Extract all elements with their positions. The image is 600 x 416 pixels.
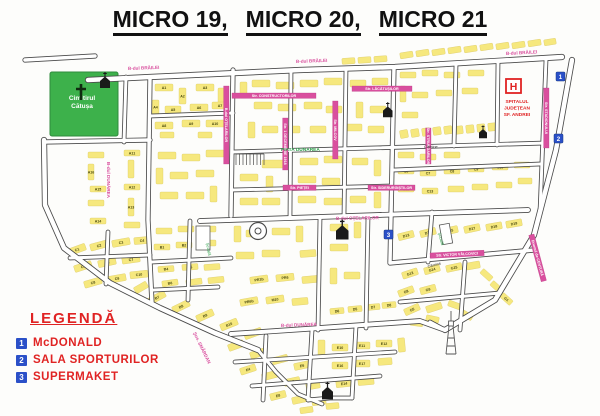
building-code: C13	[427, 189, 434, 193]
building-code: A4	[153, 105, 158, 109]
building-block	[262, 250, 280, 257]
building-block	[278, 104, 296, 111]
building-block	[402, 112, 418, 118]
building-block	[272, 228, 290, 235]
building-block: A2	[179, 88, 186, 104]
building-code: E12	[381, 342, 387, 346]
street-label: Șos. SMÂRDAN	[191, 331, 213, 366]
building-block	[374, 56, 387, 63]
building-block	[240, 198, 258, 205]
building-block	[182, 154, 200, 161]
building-block	[240, 174, 258, 181]
building-block	[252, 80, 270, 87]
building-block	[262, 126, 278, 133]
building-code: A12	[129, 185, 136, 189]
building-block	[444, 126, 453, 135]
building-block: E16	[332, 362, 348, 369]
building-block: A11	[124, 150, 140, 156]
building-block	[480, 43, 494, 51]
building-block: D5	[348, 305, 362, 312]
building-code: A10	[212, 122, 219, 126]
building-block	[544, 38, 557, 46]
building-block	[448, 46, 462, 54]
building-block: A10	[206, 120, 224, 127]
building-block	[298, 196, 316, 203]
building-block: D19	[506, 219, 523, 229]
building-block	[480, 268, 494, 281]
street-name: B-dul DUNĂREA	[281, 321, 318, 328]
church-cross	[326, 382, 330, 388]
marker-1-icon: 1	[16, 338, 27, 349]
road-surface	[454, 65, 456, 146]
building-block	[466, 125, 475, 134]
building-block	[330, 244, 348, 251]
building-block: C10	[130, 270, 149, 279]
building-block: PR6b	[240, 296, 259, 306]
legend-item-supermaket: 3 SUPERMAKET	[16, 371, 186, 383]
building-block	[324, 198, 342, 205]
building-block	[304, 102, 322, 109]
building-block	[544, 38, 557, 46]
building-block	[186, 192, 204, 199]
building-block	[400, 72, 416, 78]
church-cross	[386, 102, 389, 107]
building-block	[344, 272, 360, 279]
poi-marker: 2	[554, 134, 563, 143]
parking-lot	[236, 154, 264, 165]
building-block	[444, 152, 460, 158]
building-block	[472, 184, 488, 190]
building-block	[356, 102, 363, 118]
building-code: B2	[182, 243, 187, 247]
building-block: A13	[128, 198, 135, 216]
building-block	[262, 198, 280, 205]
building-block	[350, 196, 366, 203]
building-block: B4	[158, 265, 174, 272]
building-block	[399, 129, 408, 138]
building-block	[262, 160, 284, 168]
street-name: B-dul DUNĂREA	[106, 162, 112, 199]
road-surface	[44, 140, 150, 142]
building-block: D18	[486, 222, 503, 232]
building-block: C13	[422, 188, 438, 194]
building-block	[234, 226, 241, 242]
building-block: A1	[155, 84, 173, 91]
poi-marker: 1	[556, 72, 565, 81]
building-block	[432, 48, 446, 56]
building-block	[318, 340, 325, 356]
poi-marker-number: 2	[557, 136, 561, 143]
building-block: D17	[463, 223, 480, 233]
building-block	[448, 186, 464, 192]
building-code: B4	[164, 267, 169, 271]
building-block	[262, 160, 284, 168]
building-block	[326, 402, 339, 409]
building-block	[204, 263, 220, 270]
building-block	[296, 226, 303, 242]
building-block	[464, 45, 478, 53]
building-block	[374, 56, 387, 63]
building-block	[133, 281, 149, 294]
building-block: A14	[90, 218, 106, 224]
building-code: A14	[95, 219, 102, 223]
building-block	[88, 152, 104, 158]
building-block	[324, 78, 342, 85]
building-block	[374, 160, 381, 176]
building-block	[398, 152, 414, 158]
street-label: B-dul OȚELARILOR	[224, 86, 229, 164]
street-label: B-dul DUNĂREA	[281, 321, 318, 328]
building-block	[133, 281, 149, 294]
street-label: Str. CONSTRUCTORILOR	[232, 93, 316, 98]
building-block	[378, 358, 392, 366]
road-surface	[124, 77, 126, 142]
street-name: Str. 1 DECEMBRIE 1918	[283, 123, 287, 164]
building-block	[124, 222, 140, 228]
building-block	[344, 272, 360, 279]
building-block: A12	[124, 184, 140, 190]
street-label: Str. LĂCĂTUȘILOR	[352, 86, 412, 91]
legend-label: SALA SPORTURILOR	[33, 354, 159, 366]
building-block: B1	[154, 244, 170, 250]
building-block	[400, 72, 416, 78]
building-code: A9	[189, 122, 194, 126]
building-block	[198, 132, 212, 138]
building-block	[462, 88, 478, 94]
building-block	[378, 358, 392, 366]
building-block	[182, 154, 200, 161]
building-block	[158, 152, 176, 159]
building-block	[402, 112, 418, 118]
building-block	[248, 122, 255, 138]
tower-cabin	[449, 321, 454, 326]
building-block	[496, 182, 512, 188]
building-block	[358, 57, 371, 64]
building-block	[186, 192, 204, 199]
building-block	[432, 48, 446, 56]
building-block: G13	[401, 268, 418, 280]
building-block	[374, 192, 381, 208]
building-block	[298, 176, 316, 183]
marker-3-icon: 3	[16, 372, 27, 383]
building-block	[374, 192, 381, 208]
building-block: E4	[239, 364, 256, 376]
building-code: D6	[335, 309, 340, 313]
building-block: G15	[445, 262, 462, 272]
building-block: A16	[88, 164, 95, 180]
building-block	[465, 261, 480, 270]
street-name: Str. PIEȚEI	[290, 186, 309, 190]
street-name: Șos. SMÂRDAN	[191, 331, 213, 366]
church-icon	[322, 382, 333, 400]
street-name: Str. SIDERURGIȘTILOR	[371, 186, 412, 190]
building-block	[468, 70, 484, 76]
street-name: B-dul BRĂILEI	[128, 64, 160, 71]
building-code: C10	[136, 273, 143, 278]
street-name: Str. STADIONULUI	[544, 102, 548, 134]
building-block	[512, 41, 526, 49]
building-block	[236, 252, 254, 259]
building-block	[410, 128, 419, 137]
legend-item-sala-sporturilor: 2 SALA SPORTURILOR	[16, 354, 186, 366]
building-block	[160, 192, 178, 199]
street-name: Str. MILCOV	[333, 119, 337, 141]
building-block: D8	[382, 301, 396, 308]
street-label: Str. PIEȚEI	[283, 185, 316, 190]
building-block	[322, 178, 340, 185]
building-block	[206, 150, 224, 157]
building-block	[210, 186, 217, 202]
building-block	[208, 276, 225, 284]
building-block	[302, 275, 319, 283]
building-code: C7	[426, 171, 431, 175]
building-block	[368, 126, 384, 133]
building-block	[128, 160, 134, 178]
building-block	[88, 200, 104, 206]
building-code: E17	[359, 362, 365, 366]
building-block	[300, 249, 316, 257]
building-block	[160, 192, 178, 199]
building-block: D6	[330, 307, 344, 314]
building-block: G8	[397, 285, 414, 297]
building-code: E16	[337, 364, 343, 368]
building-block: A8	[155, 122, 173, 129]
building-code: B1	[160, 245, 165, 249]
building-block	[466, 125, 475, 134]
building-block	[354, 222, 361, 238]
street-label: B-dul BRĂILEI	[296, 57, 328, 64]
marker-2-icon: 2	[16, 355, 27, 366]
building-block: B10	[219, 318, 238, 331]
building-block	[422, 70, 438, 76]
building-block	[300, 80, 318, 87]
building-block	[496, 42, 510, 50]
building-block	[412, 92, 428, 98]
building-code: A15	[95, 187, 102, 191]
street-label: B-dul BRĂILEI	[128, 64, 160, 71]
building-code: C7	[128, 258, 133, 263]
building-block	[342, 58, 355, 65]
building-block	[272, 228, 290, 235]
building-block	[88, 200, 104, 206]
building-code: E11	[359, 344, 365, 348]
building-block	[356, 102, 363, 118]
building-block	[399, 129, 408, 138]
building-block	[160, 132, 174, 138]
building-block	[196, 170, 214, 177]
building-block	[444, 126, 453, 135]
church-body	[322, 387, 333, 400]
building-block: B9	[195, 309, 214, 323]
roundabout-inner	[255, 228, 261, 234]
building-block	[292, 297, 309, 305]
legend-label: McDONALD	[33, 337, 102, 349]
building-block	[262, 198, 280, 205]
building-block	[480, 43, 494, 51]
building-block: M10	[266, 295, 285, 304]
poi-marker-number: 3	[387, 232, 391, 239]
building-block	[422, 70, 438, 76]
building-block	[322, 178, 340, 185]
building-block	[465, 261, 480, 270]
building-block	[410, 128, 419, 137]
building-block	[198, 132, 212, 138]
building-block	[518, 178, 532, 184]
legend: LEGENDĂ 1 McDONALD 2 SALA SPORTURILOR 3 …	[16, 310, 186, 388]
building-block	[448, 186, 464, 192]
building-block	[208, 276, 225, 284]
building-block	[156, 228, 172, 234]
building-block	[310, 126, 326, 133]
building-code: A3	[203, 86, 208, 90]
building-block	[464, 45, 478, 53]
building-block	[342, 58, 355, 65]
building-block	[330, 244, 348, 251]
building-block	[254, 102, 272, 109]
legend-label: SUPERMAKET	[33, 371, 119, 383]
building-block	[326, 402, 339, 409]
building-code: A13	[128, 205, 135, 209]
building-block	[254, 102, 272, 109]
map-page: MICRO 19,MICRO 20,MICRO 21 CimitirulCătu…	[0, 0, 600, 416]
building-block	[298, 176, 316, 183]
road-surface	[231, 70, 233, 216]
building-block	[330, 268, 337, 284]
building-block	[462, 88, 478, 94]
building-block	[400, 51, 414, 59]
building-block: A6	[190, 104, 208, 111]
building-block	[496, 42, 510, 50]
building-block	[160, 132, 174, 138]
building-block	[432, 126, 441, 135]
building-block	[298, 196, 316, 203]
street-label: B-dul BRĂILEI	[506, 48, 538, 56]
building-code: A1	[162, 86, 167, 90]
building-block: PR3b	[250, 275, 269, 284]
building-block	[296, 226, 303, 242]
building-block	[158, 152, 176, 159]
building-code: D8	[387, 303, 392, 307]
road-surface	[318, 218, 320, 330]
church-icon	[336, 220, 349, 240]
building-block	[528, 39, 542, 47]
building-block	[210, 186, 217, 202]
building-block	[262, 126, 278, 133]
building-block	[300, 158, 318, 165]
poi-marker-number: 1	[559, 74, 563, 81]
building-block	[300, 406, 314, 414]
building-block	[436, 90, 452, 96]
building-block	[412, 92, 428, 98]
building-code: B6	[167, 281, 172, 286]
building-block: A5	[165, 106, 181, 113]
building-block	[468, 70, 484, 76]
building-block	[436, 90, 452, 96]
road-surface	[232, 143, 546, 152]
building-block	[300, 158, 318, 165]
building-block	[300, 249, 316, 257]
building-block: E8	[269, 390, 286, 401]
building-block	[156, 168, 163, 184]
street-name: Drumul de CENTURĂ	[531, 239, 546, 277]
building-block	[350, 196, 366, 203]
building-block	[346, 124, 362, 131]
building-code: E14	[341, 382, 348, 387]
road-surface	[344, 69, 346, 216]
building-code: C3	[118, 241, 123, 246]
building-block	[300, 80, 318, 87]
building-block	[206, 150, 224, 157]
building-block	[310, 126, 326, 133]
building-code: D7	[371, 305, 376, 309]
tv-tower-icon	[446, 311, 456, 354]
building-block	[480, 268, 494, 281]
building-block	[416, 49, 430, 57]
building-block	[236, 252, 254, 259]
hospital-name: JUDEȚEAN	[504, 106, 530, 112]
building-block	[324, 198, 342, 205]
building-block	[302, 275, 319, 283]
building-block	[354, 222, 361, 238]
road-surface	[352, 326, 356, 398]
hospital-name: SF. ANDREI	[504, 112, 531, 118]
building-code: A8	[162, 124, 167, 128]
building-block	[346, 124, 362, 131]
building-block	[372, 78, 388, 85]
building-block	[156, 228, 172, 234]
building-block: C3	[112, 237, 131, 247]
building-block	[472, 184, 488, 190]
building-block	[252, 80, 270, 87]
building-block	[170, 172, 188, 179]
legend-title: LEGENDĂ	[30, 310, 186, 327]
building-block: B6	[162, 279, 179, 287]
area-label: Cămine	[424, 144, 439, 149]
building-code: A11	[129, 151, 135, 155]
poi-marker: 3	[384, 230, 393, 239]
street-label: Str. SIDERURGIȘTILOR	[368, 185, 415, 190]
street-name: Str. LĂCĂTUȘILOR	[365, 86, 399, 91]
building-block	[324, 78, 342, 85]
building-code: A7	[218, 104, 223, 108]
building-code: A16	[88, 170, 95, 174]
building-block: A9	[182, 120, 200, 127]
area-label: PIATA DUNAREA	[281, 147, 320, 153]
building-block: A15	[90, 186, 106, 192]
street-name: B-dul BRĂILEI	[506, 48, 538, 56]
building-code: C4	[140, 239, 145, 243]
building-block	[240, 174, 258, 181]
building-block	[156, 168, 163, 184]
building-code: E10	[337, 346, 343, 350]
building-block	[512, 41, 526, 49]
road-surface	[231, 321, 445, 334]
building-block	[397, 338, 405, 353]
building-block: G9	[419, 284, 436, 295]
building-block	[358, 57, 371, 64]
road-surface	[497, 63, 498, 145]
building-block: A3	[196, 84, 214, 91]
building-code: C9	[114, 277, 119, 282]
building-block	[372, 78, 388, 85]
road-surface	[290, 70, 291, 216]
building-code: PR6	[281, 276, 288, 281]
street-label: B-dul DUNĂREA	[106, 162, 112, 199]
road-surface	[106, 232, 108, 284]
building-code: D5	[353, 307, 358, 311]
building-block	[368, 126, 384, 133]
building-block: E12	[376, 340, 392, 347]
